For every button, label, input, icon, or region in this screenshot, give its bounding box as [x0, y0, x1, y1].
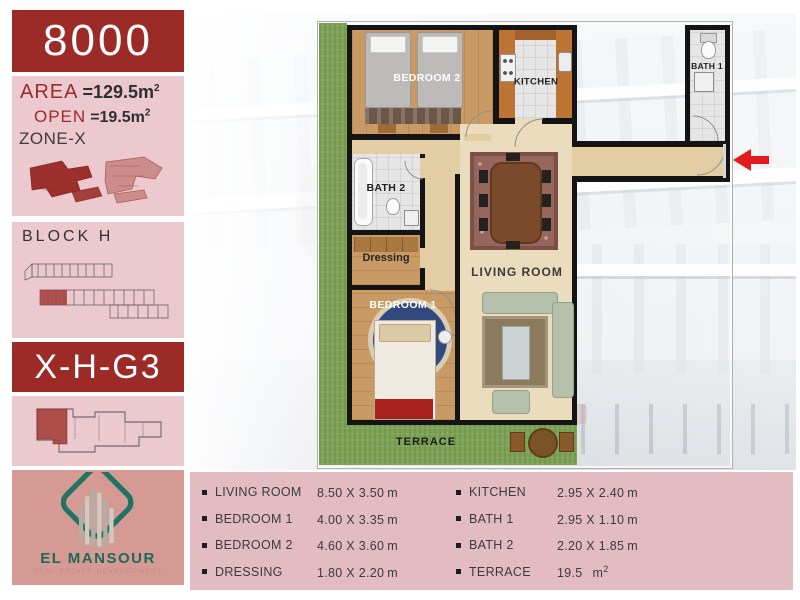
dimensions-column-1: LIVING ROOM 8.50 X 3.50m BEDROOM 1 4.00 … — [202, 479, 472, 585]
dimension-unit: m — [593, 566, 604, 580]
floor-plan: BEDROOM 2 KITCHEN BATH 1 BATH 2 Dressing… — [316, 20, 778, 472]
corridor-living-opening — [572, 147, 577, 176]
dimension-value: 2.95 X 1.10 — [557, 513, 624, 527]
bullet-icon — [202, 543, 207, 548]
dimension-size: 1.80 X 2.20m — [317, 564, 398, 580]
sofa-icon — [482, 292, 558, 314]
block-label: BLOCK H — [22, 228, 113, 246]
terrace-chair-icon — [559, 432, 574, 452]
open-label: OPEN — [34, 107, 86, 126]
dressing-label: Dressing — [362, 252, 409, 264]
dimension-value: 2.95 X 2.40 — [557, 486, 624, 500]
nightstand-icon — [430, 124, 448, 133]
sofa-icon — [552, 302, 574, 398]
bedroom1-label: BEDROOM 1 — [369, 299, 436, 311]
brand-name: EL MANSOUR — [12, 550, 184, 567]
brand-panel: EL MANSOUR REAL ESTATE DEVELOPMENT — [12, 470, 184, 585]
floor-key-panel — [12, 396, 184, 466]
terrace-table-icon — [528, 428, 558, 458]
dining-chair-icon — [542, 170, 551, 183]
hall-living-opening — [455, 140, 460, 174]
dimension-row: BATH 1 2.95 X 1.10m — [456, 506, 716, 533]
terrace-label: TERRACE — [396, 436, 456, 448]
kitchen-label: KITCHEN — [514, 77, 558, 88]
zone-label: ZONE-X — [19, 129, 86, 149]
dimension-row: BEDROOM 2 4.60 X 3.60m — [202, 532, 472, 559]
door-gap — [420, 248, 425, 268]
block-plan-image — [18, 252, 178, 332]
dimension-size: 8.50 X 3.50m — [317, 484, 398, 500]
kitchen-counter — [556, 30, 572, 118]
bullet-icon — [456, 569, 461, 574]
dimensions-panel: LIVING ROOM 8.50 X 3.50m BEDROOM 1 4.00 … — [190, 472, 793, 590]
double-bed-icon — [374, 320, 436, 420]
nightstand-icon — [378, 124, 396, 133]
dimension-size: 4.00 X 3.35m — [317, 511, 398, 527]
dimension-row: TERRACE 19.5m2 — [456, 559, 716, 586]
floor-key-image — [23, 401, 173, 461]
dimension-value: 2.20 X 1.85 — [557, 539, 624, 553]
bath1-label: BATH 1 — [691, 61, 723, 71]
dimension-unit: m — [387, 539, 398, 553]
garden-strip — [319, 23, 347, 465]
unit-code-banner: X-H-G3 — [12, 342, 184, 392]
dimension-value: 4.60 X 3.60 — [317, 539, 384, 553]
unit-number-banner: 8000 — [12, 10, 184, 72]
door-gap — [429, 285, 454, 291]
dimension-room-name: LIVING ROOM — [215, 485, 317, 499]
dimension-room-name: BEDROOM 2 — [215, 538, 317, 552]
area-info-panel: AREA=129.5m2 OPEN=19.5m2 ZONE-X — [12, 76, 184, 216]
bath2-label: BATH 2 — [367, 182, 406, 194]
dimension-value: 19.5 — [557, 566, 583, 580]
open-line: OPEN=19.5m2 — [34, 107, 150, 127]
dimensions-column-2: KITCHEN 2.95 X 2.40m BATH 1 2.95 X 1.10m… — [456, 479, 716, 585]
terrace-chair-icon — [510, 432, 525, 452]
dimension-sup: 2 — [603, 564, 608, 574]
dimension-row: BEDROOM 1 4.00 X 3.35m — [202, 506, 472, 533]
dining-chair-icon — [479, 218, 488, 231]
dimension-value: 8.50 X 3.50 — [317, 486, 384, 500]
open-value: =19.5m2 — [90, 109, 150, 126]
twin-bed-icon — [365, 32, 411, 108]
bedroom2-label: BEDROOM 2 — [393, 72, 460, 84]
entrance-arrow-icon — [730, 146, 772, 174]
dimension-unit: m — [387, 513, 398, 527]
door-gap — [420, 158, 425, 178]
bullet-icon — [202, 569, 207, 574]
block-panel: BLOCK H — [12, 222, 184, 338]
dining-chair-icon — [542, 218, 551, 231]
zone-map-image — [22, 152, 174, 212]
dimension-room-name: BATH 1 — [469, 512, 557, 526]
toilet-icon — [386, 198, 400, 215]
dimension-room-name: TERRACE — [469, 565, 557, 579]
bullet-icon — [456, 543, 461, 548]
wardrobe-icon — [354, 237, 418, 252]
dining-chair-icon — [479, 170, 488, 183]
unit-number: 8000 — [43, 16, 153, 66]
dining-chair-icon — [506, 153, 520, 161]
page: 8000 AREA=129.5m2 OPEN=19.5m2 ZONE-X BLO… — [0, 0, 800, 600]
brand-logo-icon — [38, 472, 158, 550]
dimension-room-name: BATH 2 — [469, 538, 557, 552]
dimension-size: 4.60 X 3.60m — [317, 537, 398, 553]
dimension-unit: m — [627, 486, 638, 500]
dimension-size: 2.20 X 1.85m — [557, 537, 638, 553]
area-label: AREA — [20, 81, 78, 103]
entrance-corridor — [577, 147, 725, 176]
dimension-size: 2.95 X 2.40m — [557, 484, 638, 500]
coffee-table-icon — [502, 326, 530, 380]
dimension-unit: m — [627, 513, 638, 527]
dimension-size: 19.5m2 — [557, 564, 609, 580]
door-gap — [515, 118, 542, 125]
dimension-value: 1.80 X 2.20 — [317, 566, 384, 580]
area-value: =129.5m2 — [82, 82, 159, 102]
dining-chair-icon — [506, 241, 520, 249]
brand-tagline: REAL ESTATE DEVELOPMENT — [12, 568, 184, 575]
dimension-unit: m — [387, 566, 398, 580]
dimension-room-name: BEDROOM 1 — [215, 512, 317, 526]
dimension-row: KITCHEN 2.95 X 2.40m — [456, 479, 716, 506]
bullet-icon — [202, 490, 207, 495]
door-gap — [464, 134, 491, 141]
dining-chair-icon — [479, 194, 488, 207]
twin-bed-icon — [417, 32, 463, 108]
lamp-icon — [438, 330, 452, 344]
hallway — [425, 140, 455, 290]
dimension-row: BATH 2 2.20 X 1.85m — [456, 532, 716, 559]
dimension-room-name: KITCHEN — [469, 485, 557, 499]
area-line: AREA=129.5m2 — [20, 81, 160, 104]
dimension-size: 2.95 X 1.10m — [557, 511, 638, 527]
sink-icon — [404, 210, 419, 226]
dimension-unit: m — [387, 486, 398, 500]
dimension-value: 4.00 X 3.35 — [317, 513, 384, 527]
toilet-icon — [701, 41, 716, 59]
armchair-icon — [492, 390, 530, 414]
bullet-icon — [456, 516, 461, 521]
dining-table-icon — [490, 162, 542, 244]
dining-chair-icon — [542, 194, 551, 207]
dimension-unit: m — [627, 539, 638, 553]
rug-icon — [365, 108, 461, 124]
dimension-row: LIVING ROOM 8.50 X 3.50m — [202, 479, 472, 506]
dimension-row: DRESSING 1.80 X 2.20m — [202, 559, 472, 586]
living-label: LIVING ROOM — [471, 265, 563, 279]
bullet-icon — [456, 490, 461, 495]
unit-code: X-H-G3 — [34, 348, 161, 387]
dimension-room-name: DRESSING — [215, 565, 317, 579]
bullet-icon — [202, 516, 207, 521]
sink-icon — [558, 52, 572, 72]
sink-icon — [694, 72, 714, 92]
